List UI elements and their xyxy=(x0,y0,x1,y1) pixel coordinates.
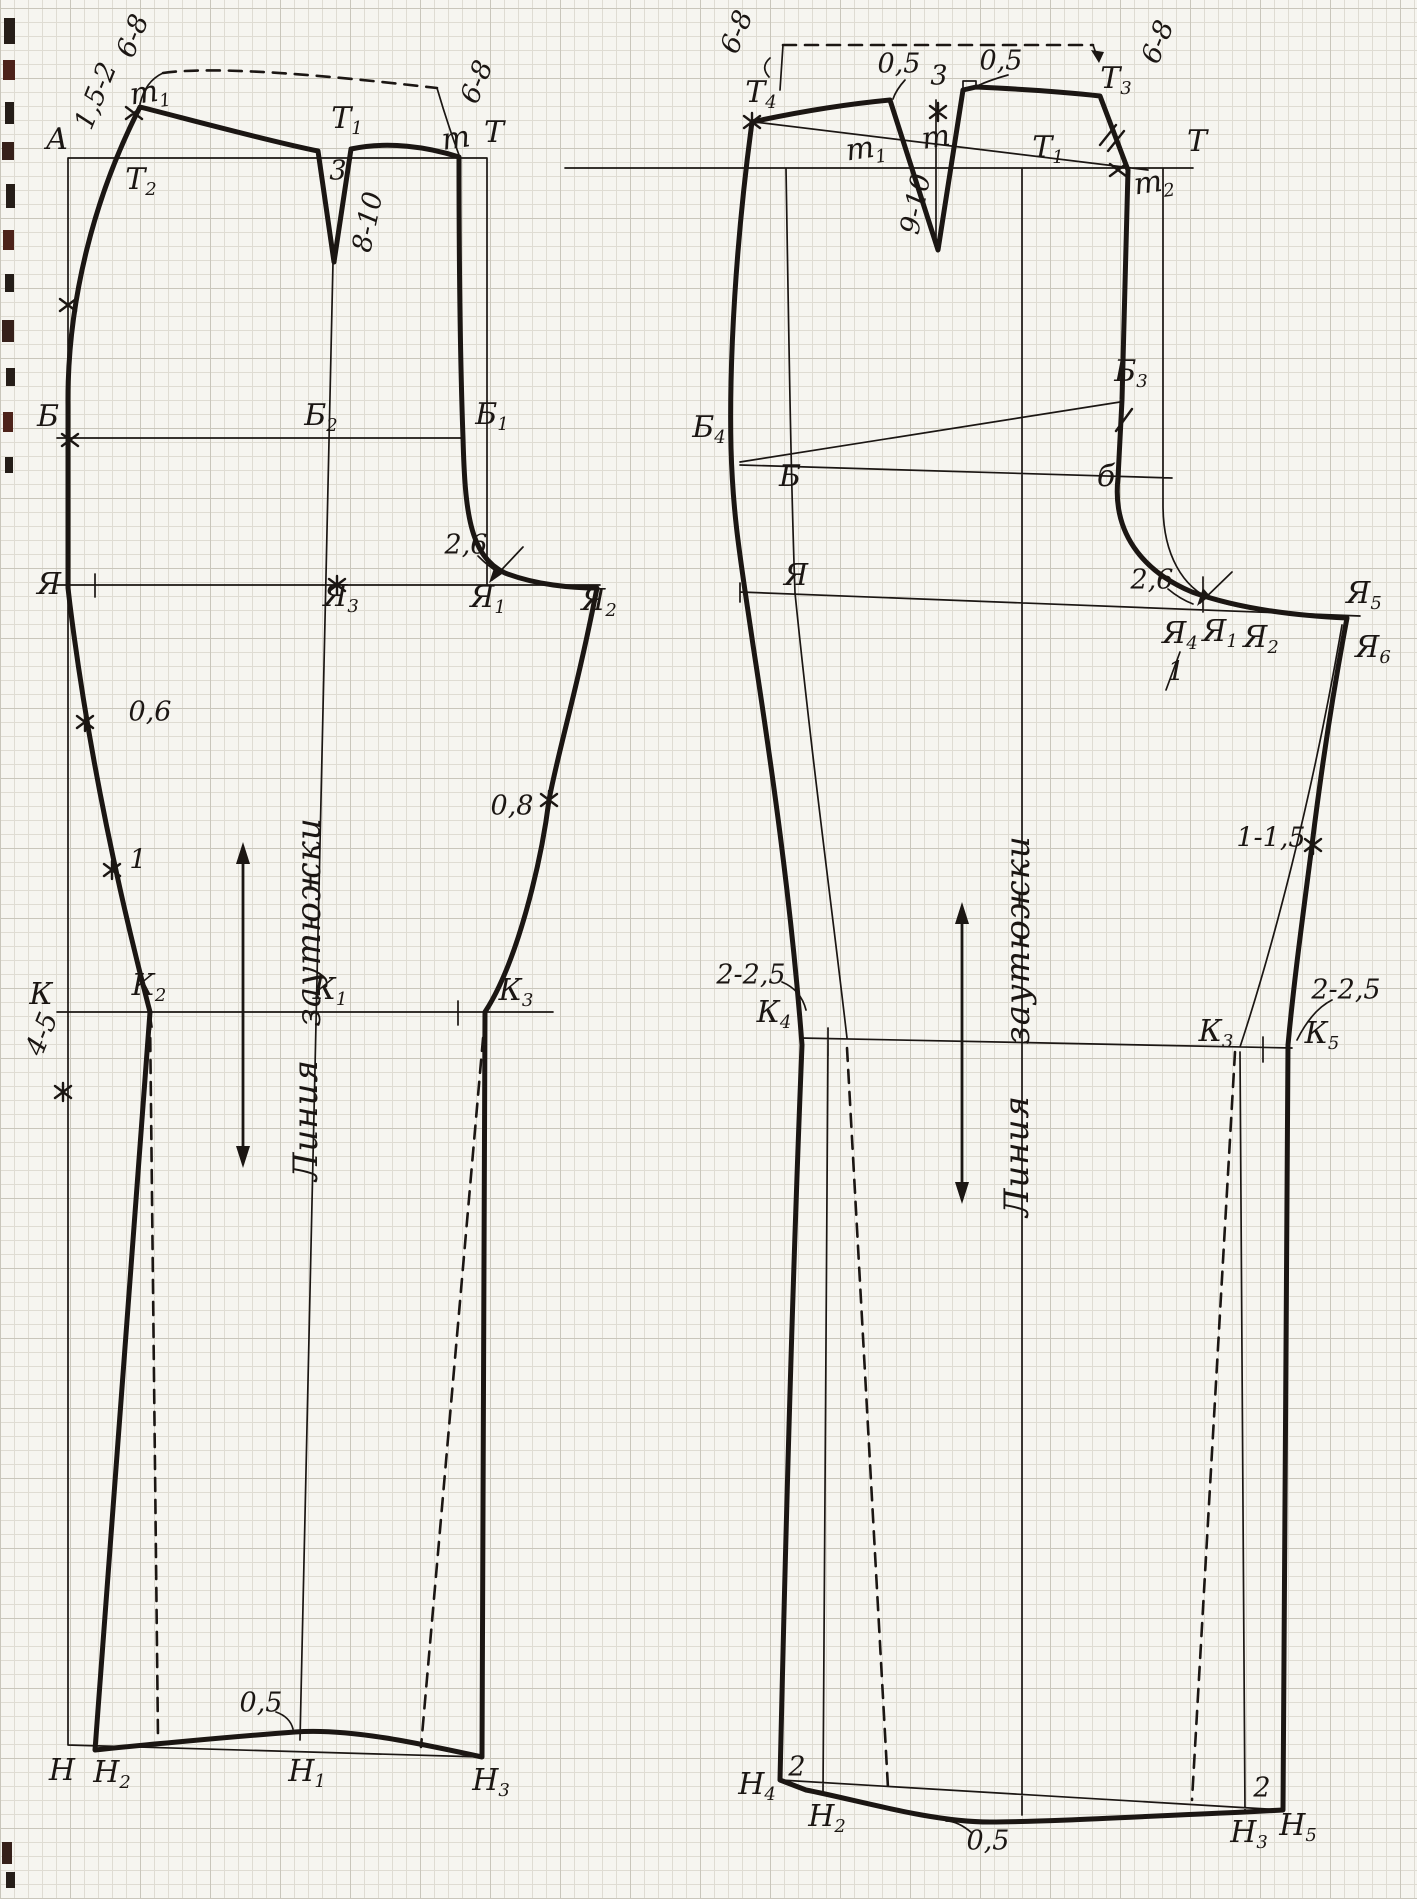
back-label-2: 2 xyxy=(1253,1775,1270,1802)
front-label-Б2: Б2 xyxy=(304,401,338,435)
front-label-А: А xyxy=(46,125,69,155)
front-label-Н2: Н2 xyxy=(93,1758,131,1792)
front-label-К1: К1 xyxy=(313,975,348,1009)
back-label-Я6: Я6 xyxy=(1355,633,1391,667)
back-label-Я2: Я2 xyxy=(1243,623,1279,657)
back-label-Я: Я xyxy=(784,561,808,591)
back-label-m2: m2 xyxy=(1132,165,1176,205)
back-label-m: m xyxy=(920,121,952,155)
back-label-Я4: Я4 xyxy=(1162,619,1198,653)
front-label-2_6: 2,6 xyxy=(445,532,488,559)
front-label-Т2: Т2 xyxy=(125,165,156,199)
back-label-m1: m1 xyxy=(844,131,888,171)
back-label-Н5: Н5 xyxy=(1279,1811,1317,1845)
back-label-Н3: Н3 xyxy=(1230,1818,1268,1852)
back-label-заутюжки: заутюжки xyxy=(1001,835,1035,1045)
front-label-К: К xyxy=(29,980,52,1010)
back-label-3: 3 xyxy=(930,63,947,90)
front-label-3: 3 xyxy=(329,158,346,185)
front-label-0_5: 0,5 xyxy=(240,1690,283,1717)
back-label-Т: Т xyxy=(1187,127,1207,157)
front-label-Т: Т xyxy=(484,118,504,148)
front-grainline-arrow xyxy=(236,842,250,1168)
front-label-Т1: Т1 xyxy=(331,104,362,138)
back-label-Линия: Линия xyxy=(1000,1095,1034,1217)
front-label-0_6: 0,6 xyxy=(129,699,172,726)
back-label-К3: К3 xyxy=(1199,1017,1234,1051)
pattern-drawing xyxy=(0,0,1417,1899)
back-point-marks xyxy=(744,103,1321,854)
front-label-К3: К3 xyxy=(499,976,534,1010)
back-label-Т1: Т1 xyxy=(1032,133,1063,167)
back-label-Н2: Н2 xyxy=(808,1802,846,1836)
front-label-К2: К2 xyxy=(132,971,167,1005)
back-label-0_5: 0,5 xyxy=(878,51,921,78)
back-grainline-arrow xyxy=(955,902,969,1204)
back-label-Н4: Н4 xyxy=(738,1770,776,1804)
front-label-Я1: Я1 xyxy=(470,583,506,617)
back-label-Б4: Б4 xyxy=(692,413,726,447)
front-label-0_8: 0,8 xyxy=(491,793,534,820)
front-label-m1: m1 xyxy=(128,75,172,115)
back-label-Т3: Т3 xyxy=(1100,64,1131,98)
front-label-m: m xyxy=(440,122,472,156)
back-label-2_6: 2,6 xyxy=(1131,567,1174,594)
front-label-Б1: Б1 xyxy=(475,400,509,434)
back-label-Я5: Я5 xyxy=(1346,579,1382,613)
front-label-Я: Я xyxy=(37,570,61,600)
back-label-Т4: Т4 xyxy=(745,78,776,112)
front-label-Н3: Н3 xyxy=(472,1766,510,1800)
back-label-Б3: Б3 xyxy=(1114,357,1148,391)
back-piece xyxy=(565,45,1360,1833)
back-label-2: 2 xyxy=(788,1754,805,1781)
back-label-1-1_5: 1-1,5 xyxy=(1236,825,1305,852)
front-outline xyxy=(68,107,597,1757)
front-label-Я2: Я2 xyxy=(581,586,617,620)
back-label-0_5: 0,5 xyxy=(980,48,1023,75)
back-label-2-2_5: 2-2,5 xyxy=(1311,977,1380,1004)
back-label-Б: Б xyxy=(779,462,801,492)
front-label-Б: Б xyxy=(37,402,59,432)
back-label-2-2_5: 2-2,5 xyxy=(716,962,785,989)
pattern-sheet: 6-81,5-2m1АТ2Т138-10mТ6-8ББ2Б12,6ЯЯ3Я1Я2… xyxy=(0,0,1417,1899)
back-outline xyxy=(731,87,1347,1822)
front-label-Н1: Н1 xyxy=(288,1757,326,1791)
back-label-1: 1 xyxy=(1167,659,1184,686)
front-label-1: 1 xyxy=(129,847,146,874)
back-label-Я1: Я1 xyxy=(1202,617,1238,651)
back-label-0_5: 0,5 xyxy=(967,1828,1010,1855)
front-label-Н: Н xyxy=(49,1756,75,1786)
back-label-К5: К5 xyxy=(1305,1019,1340,1053)
front-label-Я3: Я3 xyxy=(323,582,359,616)
back-label-К4: К4 xyxy=(757,998,792,1032)
scan-edge-artifacts xyxy=(2,18,15,1888)
back-label-б: б xyxy=(1097,462,1115,492)
front-label-Линия: Линия xyxy=(289,1059,323,1181)
